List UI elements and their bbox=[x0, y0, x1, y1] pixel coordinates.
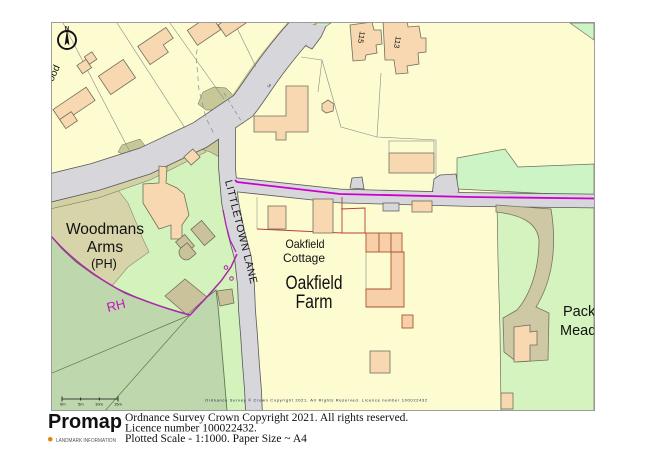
svg-text:Farm: Farm bbox=[296, 292, 333, 313]
svg-text:Oakfield: Oakfield bbox=[286, 237, 325, 251]
svg-text:(PH): (PH) bbox=[91, 257, 117, 271]
svg-text:Promap: Promap bbox=[48, 411, 122, 433]
svg-text:Oakfield: Oakfield bbox=[286, 273, 343, 294]
svg-text:LANDMARK INFORMATION: LANDMARK INFORMATION bbox=[56, 438, 116, 444]
svg-text:0m: 0m bbox=[60, 402, 66, 407]
svg-text:Cottage: Cottage bbox=[283, 251, 325, 265]
svg-text:Arms: Arms bbox=[87, 239, 123, 256]
svg-text:N: N bbox=[65, 26, 69, 32]
svg-text:5m: 5m bbox=[78, 402, 84, 407]
svg-text:Ordnance Survey © Crown Copyri: Ordnance Survey © Crown Copyright 2021. … bbox=[205, 398, 428, 403]
svg-text:Woodmans: Woodmans bbox=[66, 221, 144, 238]
svg-text:10m: 10m bbox=[95, 402, 103, 407]
svg-text:15m: 15m bbox=[114, 402, 122, 407]
svg-text:Plotted Scale - 1:1000. Paper: Plotted Scale - 1:1000. Paper Size ~ A4 bbox=[125, 433, 307, 445]
